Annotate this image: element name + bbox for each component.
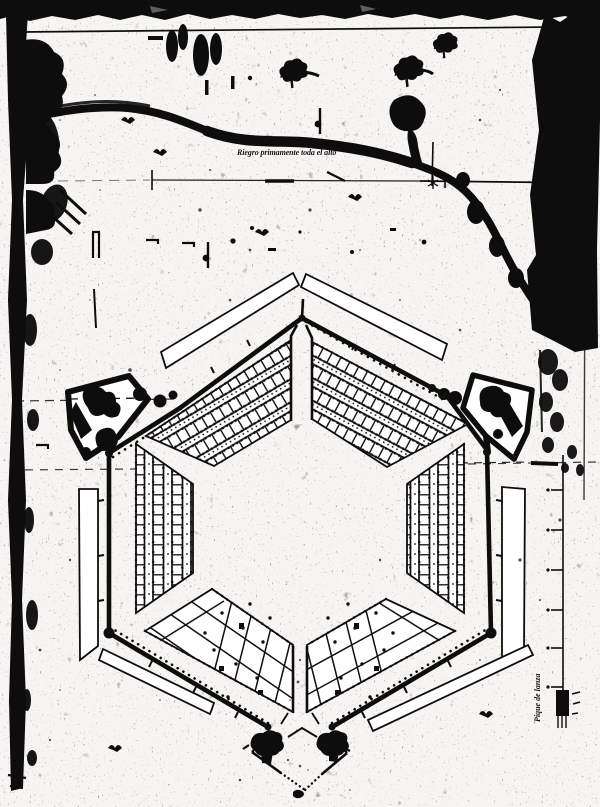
svg-text:Pique de lanza: Pique de lanza <box>533 674 542 722</box>
svg-text:Riegro primamente toda el alto: Riegro primamente toda el alto <box>236 148 336 157</box>
